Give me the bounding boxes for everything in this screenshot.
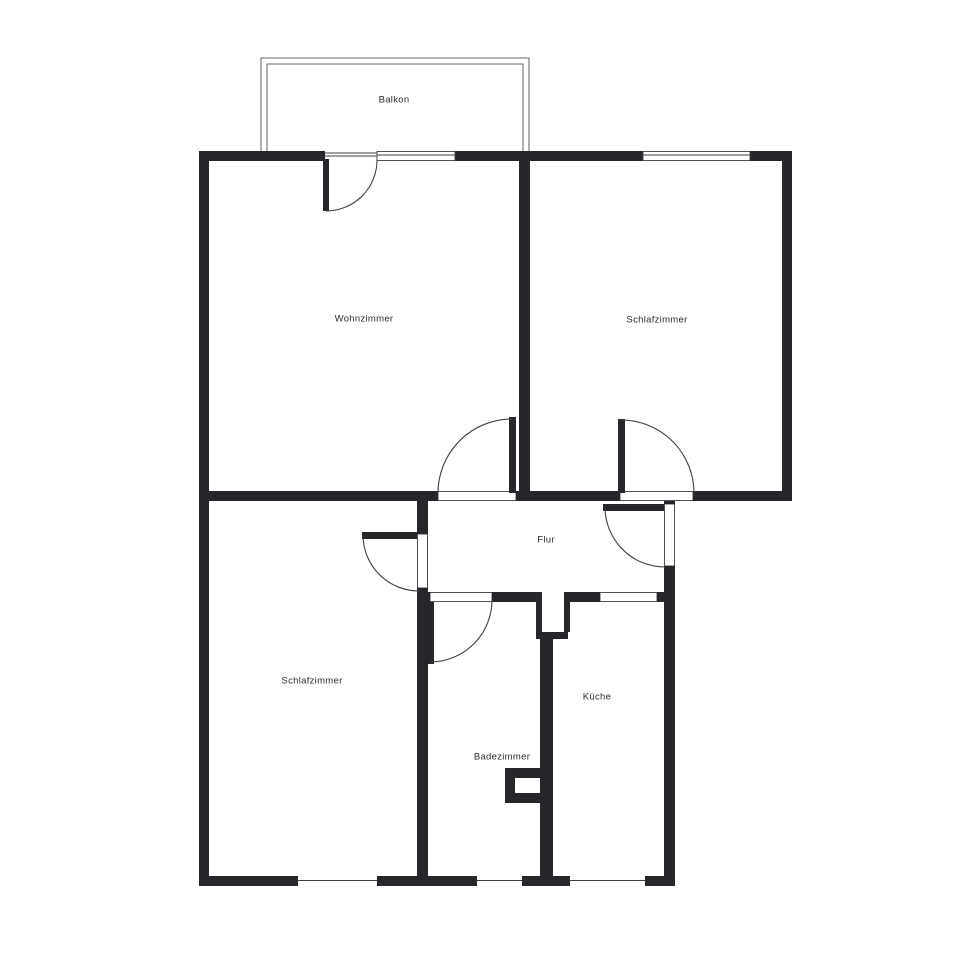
balcony-inner-line	[267, 64, 523, 151]
wohnzimmer-door-leaf	[509, 417, 516, 493]
balcony-door-arc	[326, 160, 377, 211]
room-label-balkon: Balkon	[379, 95, 410, 106]
badezimmer-door-arc	[430, 600, 492, 662]
room-label-schlafzimmer-bottom: Schlafzimmer	[281, 676, 342, 687]
wall-mid-horizontal-center	[516, 491, 620, 501]
window-wohnzimmer-top	[377, 152, 455, 161]
floor-plan-canvas: Balkon Wohnzimmer Schlafzimmer Flur Schl…	[0, 0, 960, 960]
wall-flur-left-upper	[417, 501, 428, 534]
balcony-door-leaf	[323, 159, 329, 211]
wall-exterior-bottom-a	[199, 876, 298, 886]
wohnzimmer-door-opening	[438, 492, 516, 501]
floor-plan-drawing	[0, 0, 960, 960]
wall-flur-left-lower	[417, 588, 428, 886]
wall-flur-bottom-b	[492, 592, 536, 602]
badezimmer-door-opening	[430, 593, 492, 602]
wall-exterior-right-lower	[664, 566, 675, 886]
schlafzimmer-top-door-leaf	[618, 419, 625, 493]
schlafzimmer-top-door-arc	[621, 420, 694, 493]
room-label-wohnzimmer: Wohnzimmer	[335, 314, 394, 325]
room-label-badezimmer: Badezimmer	[474, 752, 530, 763]
wall-mid-horizontal-left	[199, 491, 438, 501]
duct-notch-bottom	[505, 793, 553, 803]
schlafzimmer-bottom-door-leaf	[362, 532, 417, 539]
walls	[199, 151, 792, 886]
wall-flur-bottom-c	[564, 592, 600, 602]
wall-right-lower-stub	[664, 501, 675, 504]
kueche-doorway-opening	[600, 593, 657, 602]
wall-exterior-top-left	[199, 151, 325, 161]
wall-exterior-bottom-d	[645, 876, 675, 886]
schlafzimmer-bottom-door-opening	[418, 534, 428, 588]
schlafzimmer-bottom-door-arc	[363, 535, 419, 591]
wall-exterior-right-upper	[782, 151, 792, 501]
shaft-wall-left	[536, 592, 542, 639]
entrance-door-arc	[605, 507, 665, 567]
doors	[323, 159, 694, 664]
wall-exterior-top-mid	[455, 151, 643, 161]
room-label-flur: Flur	[537, 535, 555, 546]
wall-exterior-bottom-b	[377, 876, 477, 886]
wall-divider-bad-kueche	[540, 639, 553, 876]
entrance-door-leaf	[603, 504, 664, 511]
wall-exterior-bottom-c	[522, 876, 570, 886]
entrance-door-opening	[665, 504, 675, 566]
wall-flur-bottom-a	[417, 592, 430, 602]
shaft-wall-cap	[536, 632, 568, 639]
wall-flur-bottom-d	[657, 592, 675, 602]
shaft-wall-right	[564, 602, 570, 632]
wall-divider-top-rooms	[519, 161, 530, 491]
room-label-schlafzimmer-top: Schlafzimmer	[626, 315, 687, 326]
wall-exterior-left	[199, 151, 209, 886]
room-label-kueche: Küche	[583, 692, 611, 703]
schlafzimmer-top-door-opening	[620, 492, 693, 501]
wall-mid-horizontal-right	[693, 491, 792, 501]
wohnzimmer-door-arc	[438, 419, 512, 493]
window-schlafzimmer-top	[643, 152, 750, 161]
badezimmer-door-leaf	[427, 602, 434, 664]
